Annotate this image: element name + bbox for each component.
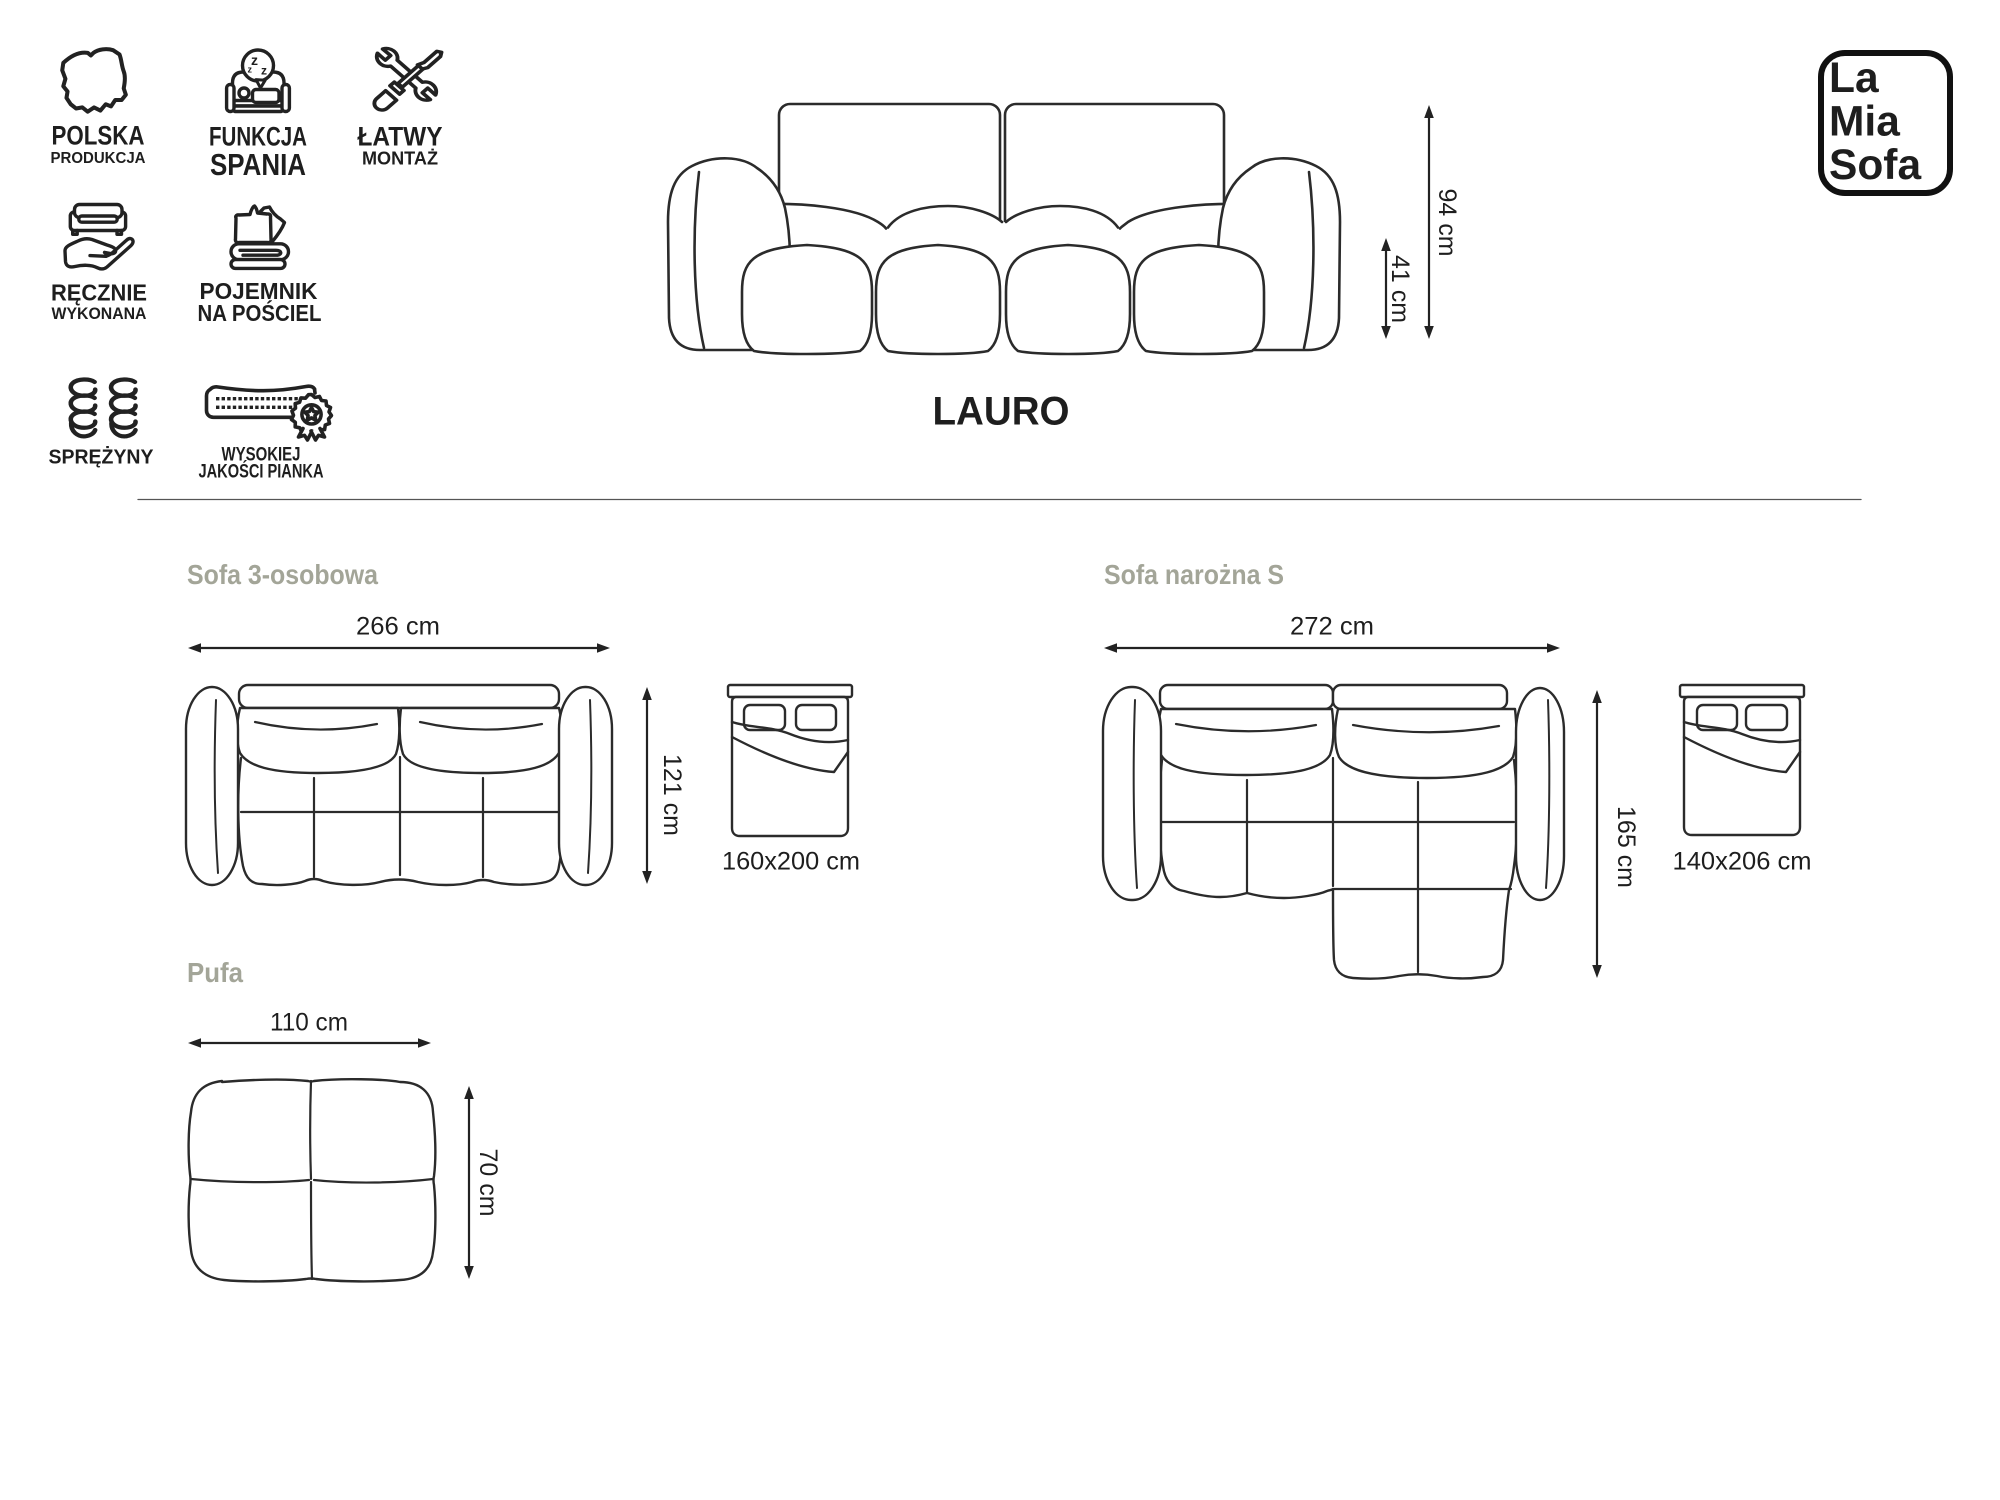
svg-text:JAKOŚCI PIANKA: JAKOŚCI PIANKA: [199, 461, 324, 483]
svg-text:Mia: Mia: [1829, 99, 1900, 146]
svg-text:POLSKA: POLSKA: [52, 121, 145, 151]
svg-text:z: z: [251, 52, 258, 68]
svg-text:165 cm: 165 cm: [1612, 806, 1640, 888]
svg-text:94 cm: 94 cm: [1433, 188, 1461, 256]
svg-text:160x200 cm: 160x200 cm: [722, 848, 860, 876]
svg-text:Sofa: Sofa: [1829, 142, 1921, 189]
svg-text:Pufa: Pufa: [187, 957, 243, 988]
svg-text:Sofa 3-osobowa: Sofa 3-osobowa: [187, 559, 378, 590]
svg-text:LAURO: LAURO: [933, 390, 1070, 434]
svg-text:RĘCZNIE: RĘCZNIE: [51, 280, 147, 306]
svg-text:41 cm: 41 cm: [1386, 255, 1414, 323]
svg-text:WYKONANA: WYKONANA: [52, 304, 147, 323]
svg-text:SPRĘŻYNY: SPRĘŻYNY: [49, 446, 155, 469]
svg-text:PRODUKCJA: PRODUKCJA: [51, 150, 146, 167]
svg-text:140x206 cm: 140x206 cm: [1673, 848, 1812, 876]
svg-text:La: La: [1829, 55, 1879, 102]
svg-text:ŁATWY: ŁATWY: [358, 122, 443, 152]
svg-text:MONTAŻ: MONTAŻ: [362, 149, 438, 169]
svg-text:110 cm: 110 cm: [270, 1009, 348, 1037]
svg-text:NA POŚCIEL: NA POŚCIEL: [198, 299, 322, 326]
svg-text:Sofa narożna S: Sofa narożna S: [1104, 559, 1284, 590]
svg-text:SPANIA: SPANIA: [210, 147, 306, 182]
svg-text:121 cm: 121 cm: [658, 754, 686, 836]
svg-text:z: z: [261, 64, 267, 78]
svg-text:70 cm: 70 cm: [474, 1148, 502, 1216]
svg-text:z: z: [248, 65, 253, 75]
svg-text:272 cm: 272 cm: [1290, 613, 1374, 641]
svg-text:266 cm: 266 cm: [356, 613, 440, 641]
